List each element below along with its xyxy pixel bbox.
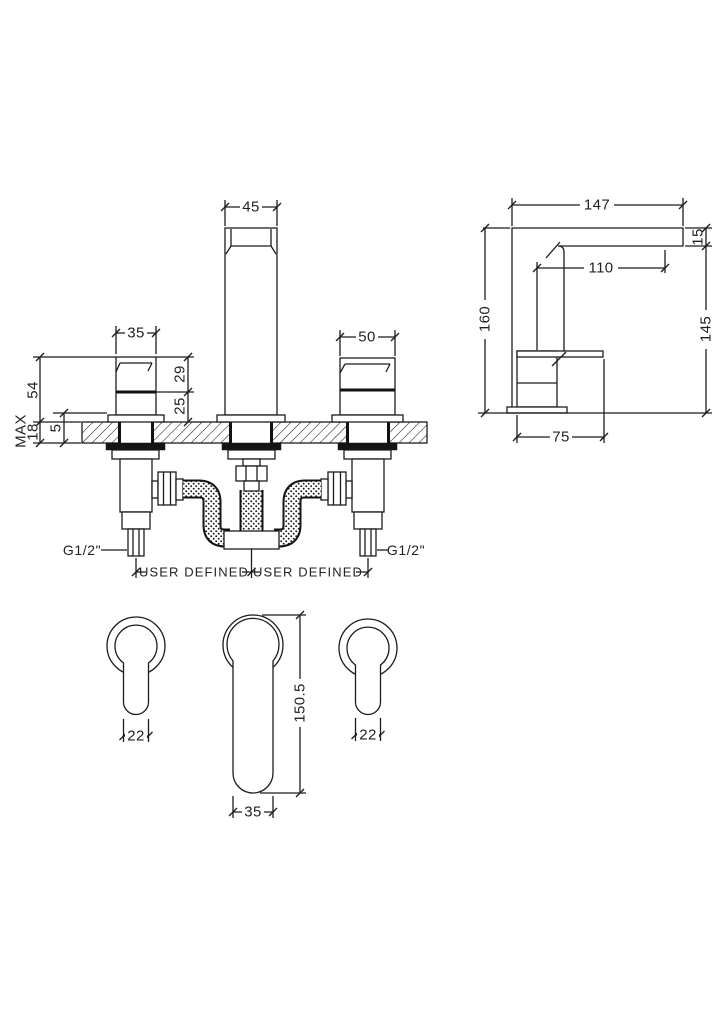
- plan-view: 22 150.5 35 22: [107, 611, 397, 821]
- dim-flange-label: 5: [48, 424, 65, 433]
- undersink-left-valve: [106, 443, 183, 556]
- front-view: 45 35 50 54 MAX 18: [13, 199, 428, 580]
- technical-drawing-canvas: 45 35 50 54 MAX 18: [0, 0, 724, 1024]
- plan-spout: 150.5 35: [223, 611, 309, 821]
- dim-handle-upper-label: 29: [172, 365, 189, 383]
- thread-size-left-label: G1/2": [63, 542, 101, 558]
- undersink-right-valve: [321, 443, 397, 556]
- spout-front: [217, 228, 285, 422]
- dim-right-handle-plan-label: 22: [359, 727, 377, 744]
- dim-right-handle-width-label: 50: [358, 329, 376, 346]
- side-handle-lever: [517, 351, 603, 357]
- dim-height-label: 160: [477, 306, 494, 332]
- side-view: 147 15 145 110 160: [477, 197, 715, 446]
- undersink-center-valve: [222, 443, 281, 491]
- side-profile: [478, 228, 712, 413]
- dim-base-label: 75: [552, 429, 570, 446]
- dim-height-above-deck-label: 54: [25, 381, 42, 399]
- dim-left-handle-plan-label: 22: [127, 728, 145, 745]
- side-base-flange: [507, 407, 567, 413]
- hose-length-left-label: USER DEFINED: [139, 565, 249, 580]
- dim-spout-plan-width-label: 35: [244, 804, 262, 821]
- flex-hose-right: [274, 489, 321, 538]
- spout-corner-break-tick: [546, 242, 560, 258]
- flex-hose-left: [183, 489, 230, 538]
- dim-reach-label: 147: [584, 197, 610, 214]
- handle-left-front: [108, 357, 164, 422]
- dim-left-handle-width-label: 35: [127, 325, 145, 342]
- dim-spout-width-label: 45: [242, 199, 260, 216]
- dim-spout-thickness-label: 15: [690, 228, 707, 246]
- handle-right-front: [332, 358, 403, 422]
- dim-underspout-label: 145: [698, 316, 715, 342]
- plan-right-handle: 22: [339, 619, 397, 744]
- dim-projection-label: 110: [588, 260, 613, 277]
- thread-size-right-label: G1/2": [387, 542, 425, 558]
- dim-deck-thickness-label: 18: [25, 423, 42, 441]
- dim-spout-plan-length-label: 150.5: [292, 683, 309, 723]
- plan-left-handle: 22: [107, 617, 165, 745]
- deck-plate: [82, 421, 427, 444]
- tap-technical-drawing: 45 35 50 54 MAX 18: [0, 0, 724, 1024]
- hose-length-right-label: USER DEFINED: [253, 565, 363, 580]
- dim-handle-lower-label: 25: [172, 397, 189, 415]
- side-valve-body: [517, 351, 557, 407]
